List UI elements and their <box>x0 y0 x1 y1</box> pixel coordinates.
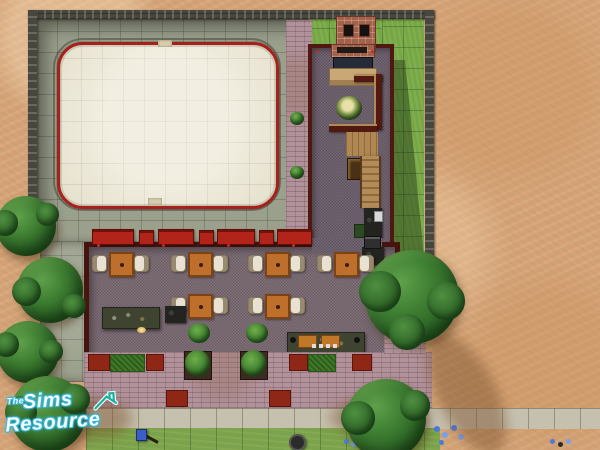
path-flower-plant <box>290 112 304 125</box>
grass-patch <box>110 354 145 372</box>
dining-table <box>188 252 213 277</box>
red-mat <box>352 354 372 371</box>
plates <box>312 344 338 348</box>
wall-lamp <box>227 244 230 247</box>
rink-entrance-top <box>158 40 172 47</box>
wall-lamp <box>316 50 319 53</box>
blue-flowers <box>548 437 574 449</box>
watermark-logo: The Sims Resource <box>0 383 144 450</box>
interior-wall <box>374 74 382 130</box>
chimney-flue <box>359 24 370 37</box>
watermark-resource: Resource <box>5 408 102 438</box>
red-bench <box>92 229 134 245</box>
dining-table <box>109 252 134 277</box>
wall-lamp <box>292 244 295 247</box>
dining-chair <box>290 255 305 272</box>
red-mat <box>146 354 164 371</box>
red-mat <box>88 354 110 371</box>
watermark-roof-icon <box>92 390 123 412</box>
tree <box>365 250 459 344</box>
staircase <box>362 156 379 208</box>
trash-can <box>289 434 306 450</box>
indoor-plant <box>246 323 268 343</box>
dining-chair <box>359 255 374 272</box>
dining-chair <box>213 297 228 314</box>
tree <box>17 257 83 323</box>
dining-table <box>334 252 359 277</box>
path-flower-plant <box>290 166 304 179</box>
planter-shrub <box>185 350 210 376</box>
dining-chair <box>317 255 332 272</box>
interior-wall <box>329 124 377 132</box>
red-mat <box>289 354 308 371</box>
bar-counter <box>102 307 160 329</box>
cash-register <box>165 306 186 323</box>
red-bench <box>217 229 255 245</box>
dining-table <box>265 252 290 277</box>
stair-landing <box>346 132 378 156</box>
planter-shrub <box>241 350 266 376</box>
dining-chair <box>290 297 305 314</box>
red-bench <box>139 230 154 245</box>
buffet-lamp <box>354 337 360 343</box>
floor-glint <box>137 327 146 333</box>
indoor-flower-plant <box>336 96 362 120</box>
red-bench <box>199 230 214 245</box>
chimney-flue <box>343 24 354 37</box>
stair-rail <box>379 156 381 208</box>
tree <box>0 321 59 383</box>
dining-chair <box>171 255 186 272</box>
ice-rink <box>57 42 279 209</box>
red-bench <box>259 230 274 245</box>
rink-entrance-bottom <box>148 198 162 205</box>
stair-rail <box>360 156 362 208</box>
dining-chair <box>248 255 263 272</box>
red-mat <box>269 390 291 407</box>
indoor-plant <box>188 323 210 343</box>
grass-patch <box>308 354 336 372</box>
red-bench <box>158 229 194 245</box>
wall-lamp <box>162 244 165 247</box>
wall-lamp <box>97 244 100 247</box>
refrigerator <box>374 211 383 222</box>
sims2-lot-screenshot: The Sims Resource <box>0 0 600 450</box>
dining-chair <box>213 255 228 272</box>
red-mat <box>166 390 188 407</box>
dining-table <box>188 294 213 319</box>
dining-chair <box>248 297 263 314</box>
dining-chair <box>134 255 149 272</box>
stone-lot-wall-right <box>425 10 434 258</box>
barbecue-grill <box>364 236 381 249</box>
wall-lamp <box>371 50 374 53</box>
tree <box>346 379 426 450</box>
dining-table <box>265 294 290 319</box>
dining-chair <box>92 255 107 272</box>
red-bench <box>277 229 312 245</box>
fireplace-opening <box>337 47 367 53</box>
buffet-lamp <box>290 337 296 343</box>
